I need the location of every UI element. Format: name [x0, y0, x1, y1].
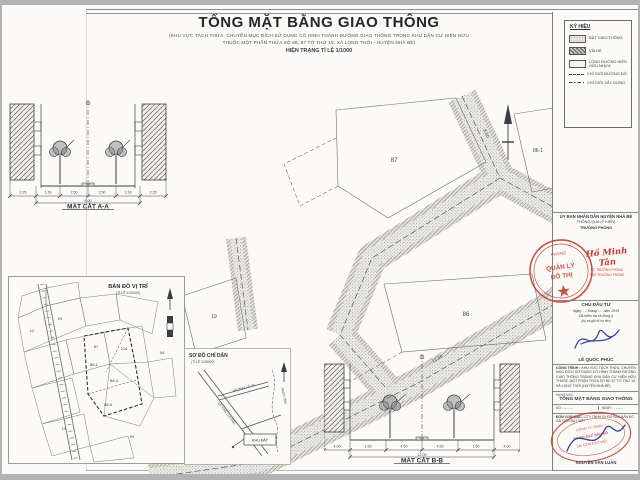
approval-line: THÔNG QUA (Ý KIẾN) — [553, 220, 639, 224]
svg-text:1.50: 1.50 — [45, 191, 52, 195]
surveyor-name: NGUYỄN VĂN LUÂN — [553, 460, 639, 465]
guide-map-title: SƠ ĐỒ CHỈ DẪN — [189, 352, 228, 359]
approver-role: TRƯỞNG PHÒNG — [553, 226, 639, 230]
section-b-b: 4.00 1.50 4.50 4.50 1.50 4.00 12.00 MẶT … — [324, 352, 520, 464]
agency-line: ỦY BAN NHÂN DÂN HUYỆN NHÀ BÈ — [553, 214, 639, 219]
section-bb-label: MẶT CẮT B-B — [401, 456, 443, 465]
right-column: KÝ HIỆU ĐẤT GIAO THÔNG VỈA HÈ LÒNG ĐƯỜNG… — [552, 12, 640, 471]
svg-text:214: 214 — [121, 346, 128, 351]
section-aa-label: MẶT CẮT A-A — [67, 202, 109, 211]
titleblock-divider — [553, 300, 639, 301]
section-aa-total: 8.00 — [85, 199, 92, 203]
svg-text:86-4: 86-4 — [110, 378, 119, 383]
titleblock-divider — [553, 364, 639, 365]
approver-note-1: KT. TRƯỞNG PHÒNG — [579, 268, 635, 272]
svg-text:86-6: 86-6 — [104, 402, 113, 407]
svg-text:2.25: 2.25 — [150, 191, 157, 195]
svg-text:2.25: 2.25 — [20, 191, 27, 195]
section-aa-linework — [10, 100, 166, 188]
legend-item-red-line: CHỈ GIỚI ĐƯỜNG ĐỎ — [569, 72, 629, 76]
lot-19-label: 19 — [211, 314, 217, 320]
scale-line: HIỆN TRẠNG TỈ LỆ 1/1000 — [88, 48, 550, 54]
svg-text:1.50: 1.50 — [365, 445, 372, 449]
subtitle-line-2: THUỘC MỘT PHẦN THỬA SỐ 86, 87 TỜ THỨ 19,… — [88, 40, 550, 45]
project-description: CÔNG TRÌNH : KHU VỰC TÁCH THỬA, CHUYỂN M… — [556, 366, 636, 388]
legend-item-road-land: ĐẤT GIAO THÔNG — [569, 35, 629, 43]
drawing-header: TỔNG MẶT BẰNG GIAO THÔNG (KHU VỰC TÁCH T… — [88, 14, 550, 54]
location-map-scale: (TỈ LỆ 1/10000) — [116, 290, 140, 295]
scan-edge-bottom — [0, 474, 640, 480]
oval-stamp: CÔNG TY TNHH DV ĐO ĐẠC BẢN ĐỒ SÀI GÒN ĐẤ… — [545, 407, 637, 467]
section-a-a: 2.25 1.50 2.50 2.50 1.50 2.25 8.00 MẶT C… — [8, 96, 168, 210]
svg-text:1.50: 1.50 — [125, 191, 132, 195]
svg-text:4.00: 4.00 — [334, 445, 341, 449]
svg-text:86-1: 86-1 — [90, 362, 99, 367]
section-bb-total: 12.00 — [418, 453, 427, 457]
item-title: TỔNG MẶT BẰNG GIAO THÔNG — [553, 397, 639, 402]
subtitle-line-1: (KHU VỰC TÁCH THỬA, CHUYỂN MỤC ĐÍCH SỬ D… — [88, 33, 550, 38]
scan-edge-top — [0, 0, 640, 5]
svg-text:CÔNG TY TNHH: CÔNG TY TNHH — [576, 423, 604, 433]
scanned-drawing-sheet: { "colors":{"stamp_red":"#c23a2e","sign_… — [0, 0, 640, 480]
investor-title: CHỦ ĐẦU TƯ — [553, 302, 639, 307]
approver-signature: Hồ Minh Tân — [576, 245, 638, 270]
guide-map-scale: (TỈ LỆ 1/25000) — [191, 359, 215, 364]
legend-box: KÝ HIỆU ĐẤT GIAO THÔNG VỈA HÈ LÒNG ĐƯỜNG… — [564, 20, 632, 128]
road-land-swatch-icon — [569, 35, 586, 43]
titleblock-divider — [553, 212, 639, 213]
legend-item-sidewalk: VỈA HÈ — [569, 47, 629, 55]
approver-note-2: PHÓ TRƯỞNG PHÒNG — [579, 273, 635, 277]
svg-text:94: 94 — [130, 434, 135, 439]
section-bb-linework — [324, 354, 520, 440]
location-map: 12 29 87 214 54 86-4 86-6 19 94 86-1 BẢN… — [8, 276, 185, 464]
investor-date: Ngày ..... tháng ..... năm 2019 — [553, 309, 639, 313]
svg-text:12: 12 — [30, 328, 35, 333]
svg-text:29: 29 — [58, 316, 63, 321]
guide-map: SƠ ĐỒ CHỈ DẪN (TỈ LỆ 1/25000) LÊ VĂN LƯƠ… — [184, 348, 291, 465]
location-map-title: BẢN ĐỒ VỊ TRÍ — [108, 282, 148, 290]
svg-text:4.00: 4.00 — [504, 445, 511, 449]
existing-road-swatch-icon — [569, 60, 586, 68]
scan-edge-left — [0, 0, 2, 480]
lot-86-1-label: 86-1 — [533, 148, 543, 154]
legend-item-existing-road: LÒNG ĐƯỜNG HIỆN HỮU NHỰA — [569, 60, 629, 68]
svg-text:2.50: 2.50 — [99, 191, 106, 195]
investor-note-1: Đã kiểm tra và đồng ý — [553, 314, 639, 318]
sidewalk-swatch-icon — [569, 47, 586, 55]
svg-text:19: 19 — [62, 426, 67, 431]
lot-87-label: 87 — [391, 158, 398, 164]
section-bb-trees — [380, 394, 471, 438]
svg-text:54: 54 — [160, 350, 165, 355]
titleblock-divider — [553, 404, 639, 405]
red-line-swatch-icon — [569, 74, 584, 75]
investor-name: LÊ QUỐC PHÚC — [553, 357, 639, 362]
svg-text:87: 87 — [94, 344, 99, 349]
svg-text:PHÒNG: PHÒNG — [551, 250, 567, 257]
svg-text:4.50: 4.50 — [437, 445, 444, 449]
investor-signature-mark — [569, 322, 625, 356]
svg-text:KHU ĐẤT: KHU ĐẤT — [252, 439, 269, 443]
lot-86-label: 86 — [463, 312, 470, 318]
legend-item-building-line: CHỈ GIỚI XÂY DỰNG — [569, 81, 629, 85]
legend-title: KÝ HIỆU — [570, 24, 631, 30]
page-title: TỔNG MẶT BẰNG GIAO THÔNG — [88, 14, 550, 31]
section-aa-trees — [50, 140, 131, 184]
building-line-swatch-icon — [569, 82, 584, 83]
svg-text:2.50: 2.50 — [71, 191, 78, 195]
svg-text:4.50: 4.50 — [401, 445, 408, 449]
svg-text:1.50: 1.50 — [473, 445, 480, 449]
